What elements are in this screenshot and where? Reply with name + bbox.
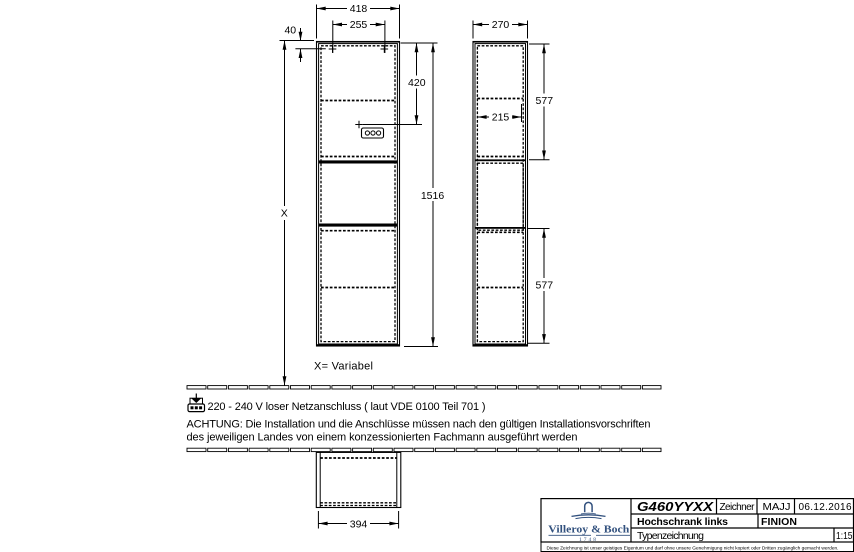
- svg-text:40: 40: [284, 25, 296, 37]
- svg-text:Hochschrank links: Hochschrank links: [637, 516, 728, 528]
- svg-text:Typenzeichnung: Typenzeichnung: [637, 530, 704, 542]
- svg-text:1516: 1516: [421, 190, 445, 202]
- svg-text:MAJJ: MAJJ: [763, 502, 791, 513]
- svg-text:Villeroy & Boch: Villeroy & Boch: [548, 524, 629, 536]
- svg-text:X: X: [281, 208, 288, 220]
- svg-text:X= Variabel: X= Variabel: [314, 361, 373, 373]
- svg-text:G460YYXX: G460YYXX: [637, 499, 715, 514]
- svg-text:FINION: FINION: [761, 516, 797, 528]
- svg-text:1:15: 1:15: [836, 530, 853, 542]
- svg-text:270: 270: [492, 19, 510, 31]
- svg-text:394: 394: [350, 518, 368, 530]
- svg-text:577: 577: [536, 95, 554, 107]
- svg-text:Zeichner: Zeichner: [720, 502, 756, 513]
- svg-text:255: 255: [350, 19, 368, 31]
- svg-text:ACHTUNG: Die Installation und: ACHTUNG: Die Installation und die Anschl…: [187, 419, 651, 431]
- svg-text:des jeweiligen Landes von eine: des jeweiligen Landes von einem konzessi…: [187, 432, 578, 444]
- svg-text:420: 420: [408, 77, 426, 89]
- svg-text:220 - 240 V loser Netzanschlus: 220 - 240 V loser Netzanschluss ( laut V…: [208, 401, 486, 413]
- svg-text:215: 215: [492, 112, 510, 124]
- svg-text:418: 418: [350, 3, 368, 15]
- svg-text:577: 577: [536, 280, 554, 292]
- svg-text:Diese Zeichnung ist unser geis: Diese Zeichnung ist unser geistiges Eige…: [547, 545, 839, 551]
- svg-text:06.12.2016: 06.12.2016: [799, 502, 852, 513]
